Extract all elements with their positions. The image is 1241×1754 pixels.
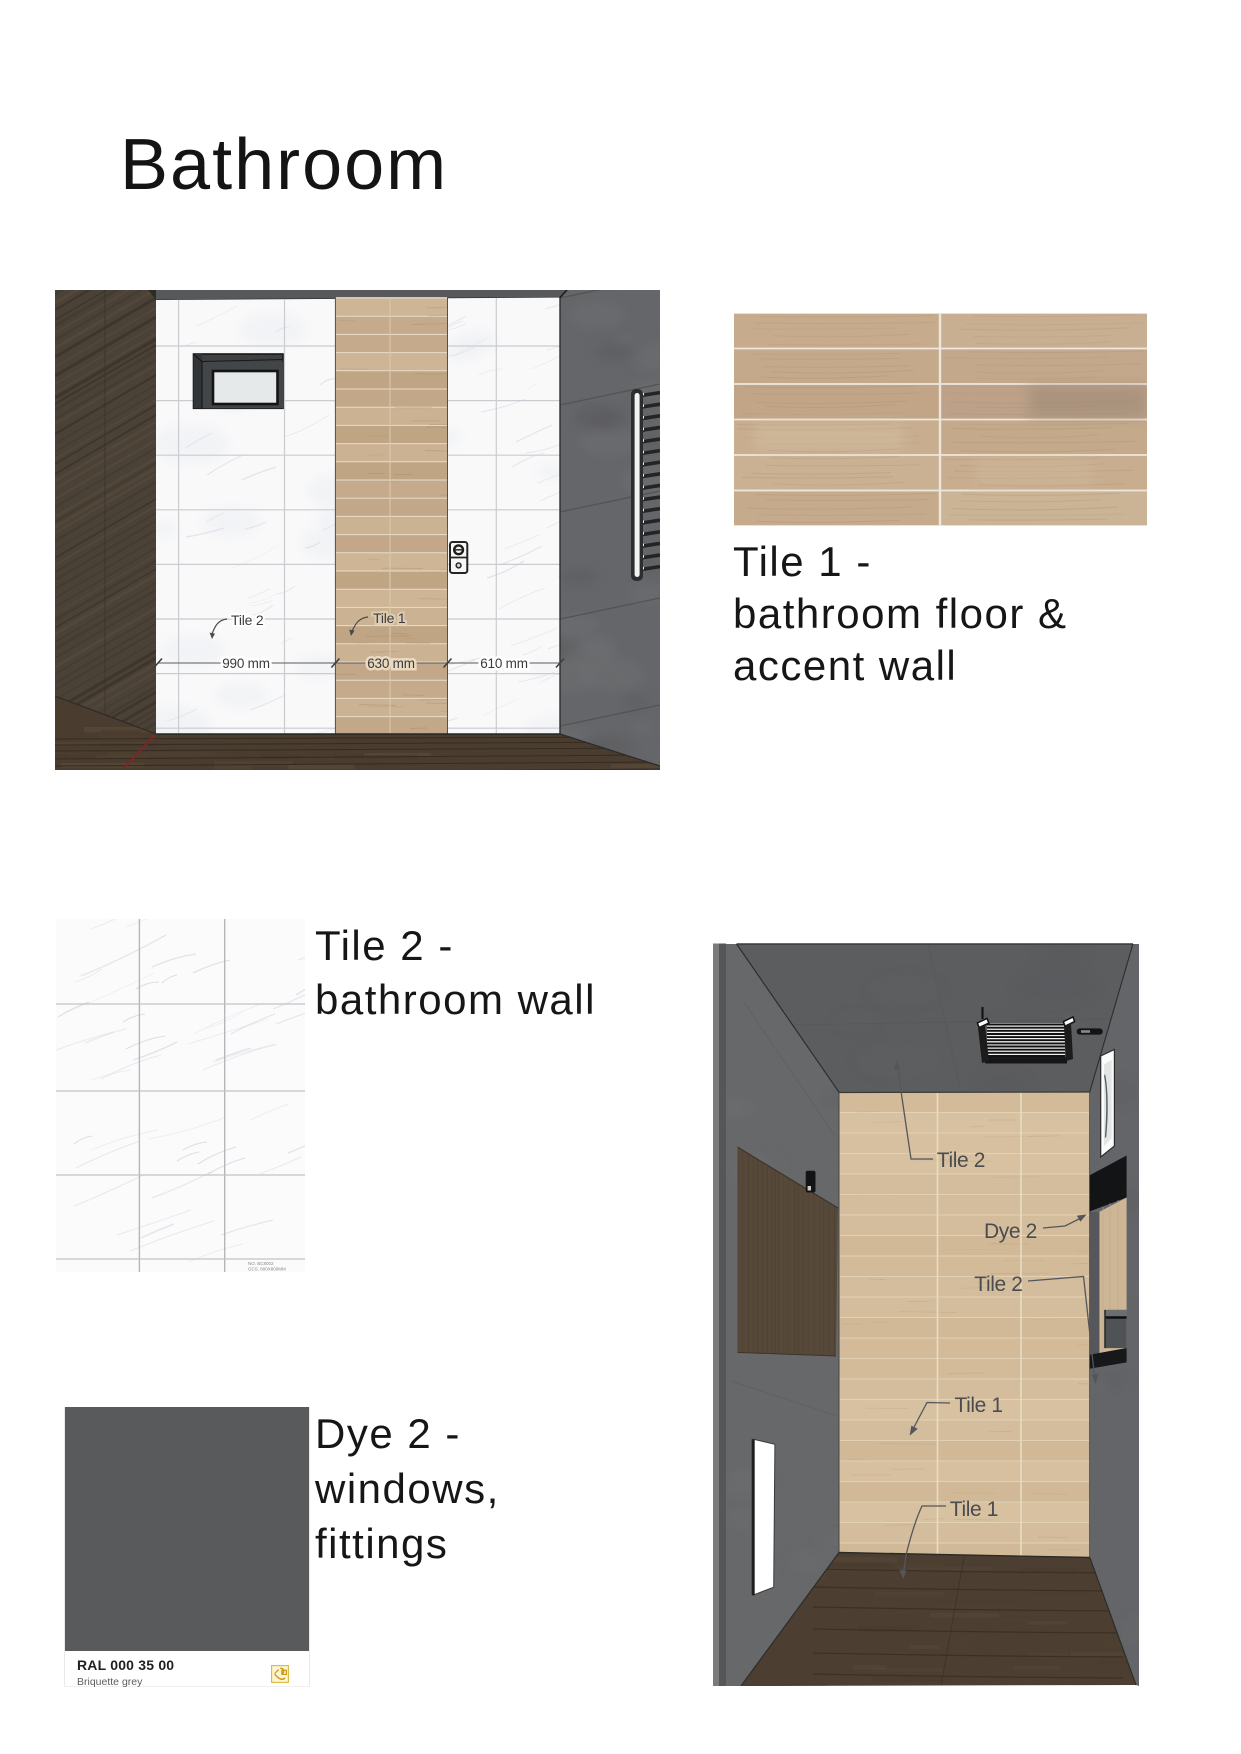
- svg-text:Tile 1: Tile 1: [373, 610, 406, 626]
- svg-text:Tile 2: Tile 2: [231, 612, 264, 628]
- svg-text:Tile 2: Tile 2: [937, 1149, 985, 1172]
- svg-text:GCS. 800X800MM: GCS. 800X800MM: [248, 1267, 286, 1272]
- svg-text:610 mm: 610 mm: [480, 656, 528, 671]
- svg-text:NO. BC8002: NO. BC8002: [248, 1261, 274, 1266]
- svg-text:630 mm: 630 mm: [367, 656, 415, 671]
- svg-text:Dye 2: Dye 2: [984, 1220, 1037, 1243]
- svg-text:Tile 1: Tile 1: [955, 1394, 1003, 1417]
- svg-text:Tile 1: Tile 1: [950, 1498, 998, 1521]
- svg-text:Tile 2: Tile 2: [974, 1273, 1022, 1296]
- svg-text:990 mm: 990 mm: [222, 656, 270, 671]
